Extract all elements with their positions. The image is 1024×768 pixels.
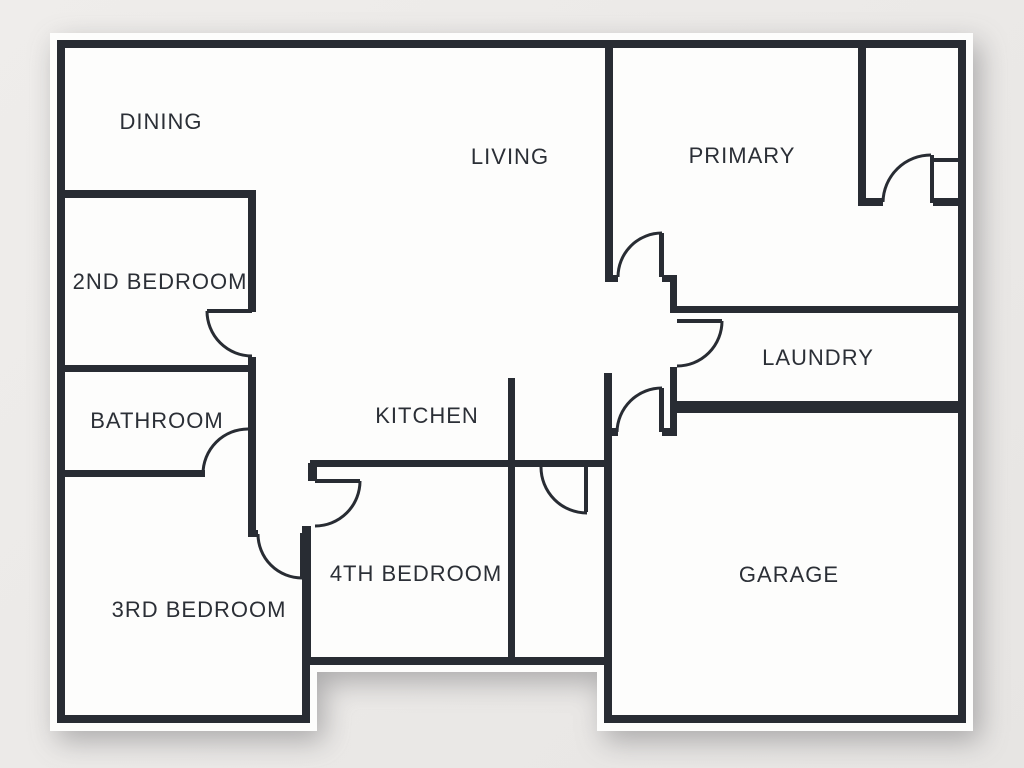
door-leaf-third-bedroom xyxy=(300,533,304,578)
door-leaf-primary xyxy=(659,233,664,277)
wall-hall-door-west-jamb xyxy=(248,530,258,537)
wall-laundry-bottom xyxy=(670,401,958,413)
wall-garage-door-east-jamb xyxy=(662,428,677,436)
wall-laundry-top xyxy=(677,306,958,313)
wall-bed2-top xyxy=(57,190,256,198)
wall-outer-left xyxy=(57,40,65,723)
wall-outer-bottom-garage xyxy=(604,715,966,723)
wall-bed2-east-lower xyxy=(248,357,256,537)
room-label-fourth-bedroom: 4TH BEDROOM xyxy=(330,561,502,586)
wall-outer-right xyxy=(958,40,966,723)
wall-primary-hinge-step-h xyxy=(662,275,677,282)
room-label-kitchen: KITCHEN xyxy=(375,403,479,428)
door-leaf-garage xyxy=(659,388,664,432)
wall-closet-divider xyxy=(858,48,866,206)
wall-closet-bottom-right xyxy=(933,198,958,206)
door-leaf-laundry xyxy=(677,319,722,323)
wall-kitchen-east xyxy=(508,378,515,657)
room-label-second-bedroom: 2ND BEDROOM xyxy=(73,269,248,294)
wall-living-primary-divider xyxy=(605,48,613,282)
wall-kitchen-bottom xyxy=(310,460,612,467)
wall-bathroom-divider xyxy=(57,365,256,372)
wall-primary-hinge-step-v xyxy=(670,282,677,313)
floor-plan-scene: DINING LIVING PRIMARY 2ND BEDROOM BATHRO… xyxy=(0,0,1024,768)
wall-bathroom-bottom xyxy=(57,470,205,477)
room-label-living: LIVING xyxy=(471,144,549,169)
door-leaf-kitchen-nook xyxy=(584,467,588,512)
wall-outer-top xyxy=(57,40,966,48)
wall-garage-west xyxy=(604,373,612,715)
room-label-garage: GARAGE xyxy=(739,562,839,587)
wall-outer-bottom-middle xyxy=(302,657,612,665)
door-leaf-fourth-bedroom xyxy=(315,479,360,483)
wall-closet-bottom-left xyxy=(858,198,883,206)
room-label-bathroom: BATHROOM xyxy=(90,408,223,433)
room-label-dining: DINING xyxy=(120,109,203,134)
room-label-third-bedroom: 3RD BEDROOM xyxy=(112,597,287,622)
wall-primary-south-jamb xyxy=(605,275,618,282)
room-label-laundry: LAUNDRY xyxy=(762,345,874,370)
wall-outer-bottom-left xyxy=(57,715,310,723)
door-leaf-closet xyxy=(930,155,934,203)
wall-outer-step xyxy=(302,657,310,723)
door-leaf-second-bedroom xyxy=(207,309,252,313)
wall-bed2-east-upper xyxy=(248,190,256,312)
room-label-primary: PRIMARY xyxy=(689,143,796,168)
floor-plan-drawing: DINING LIVING PRIMARY 2ND BEDROOM BATHRO… xyxy=(0,0,1024,768)
closet-rod-line xyxy=(933,158,958,162)
